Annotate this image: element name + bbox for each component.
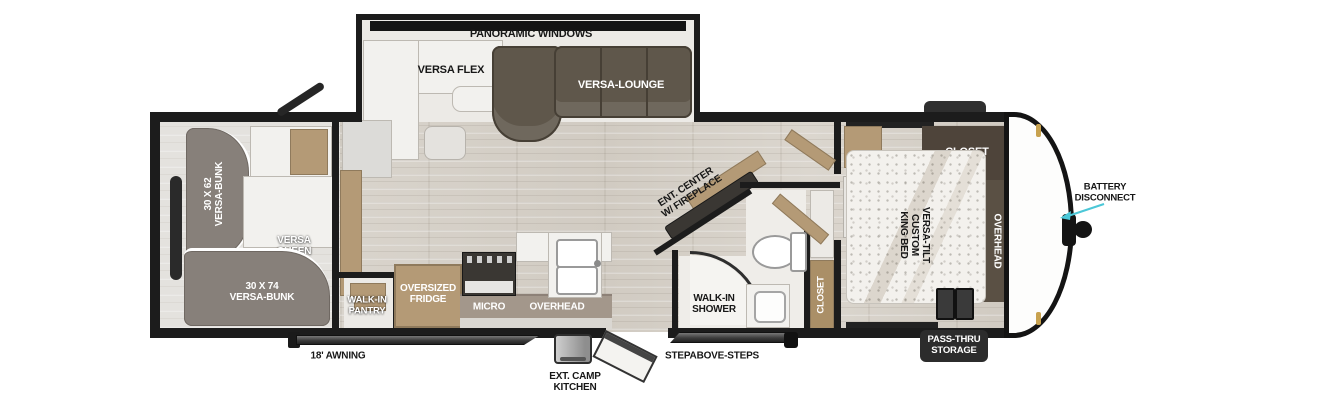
sink-faucet bbox=[594, 260, 601, 267]
stove-knobs bbox=[467, 256, 513, 263]
top-wall-left bbox=[150, 112, 362, 122]
stove-cooktop bbox=[462, 252, 516, 296]
bedroom-wall-lower bbox=[834, 240, 841, 332]
camp-kitchen-unit bbox=[554, 334, 592, 364]
bed-step bbox=[936, 288, 955, 320]
versa-flex-label: VERSA FLEX bbox=[418, 64, 485, 76]
vanity-sink bbox=[754, 291, 786, 323]
bunk-30x62-label: 30 X 62VERSA-BUNK bbox=[203, 162, 225, 227]
top-wall-right bbox=[694, 112, 1012, 122]
shower-label: WALK-INSHOWER bbox=[692, 293, 736, 315]
entry-steps-bar bbox=[670, 332, 786, 343]
bunk-30x74-label: 30 X 74VERSA-BUNK bbox=[230, 281, 295, 303]
versa-lounge-chaise bbox=[492, 46, 562, 142]
awning-label: 18' AWNING bbox=[310, 350, 365, 361]
king-bed-label: VERSA-TILTCUSTOMKING BED bbox=[897, 207, 931, 263]
versa-lounge-label: VERSA-LOUNGE bbox=[578, 79, 664, 91]
rv-floorplan: PANORAMIC WINDOWS VERSA FLEX VERSA-LOUNG… bbox=[0, 0, 1335, 410]
pass-thru-label: PASS-THRUSTORAGE bbox=[928, 335, 981, 356]
bedroom-wall-upper bbox=[834, 118, 841, 174]
panoramic-windows-label: PANORAMIC WINDOWS bbox=[470, 28, 592, 40]
toilet-tank bbox=[790, 232, 807, 272]
micro-label: MICRO bbox=[473, 301, 505, 312]
cap-hinge bbox=[1036, 312, 1041, 325]
bedroom-overhead-label: OVERHEAD bbox=[991, 213, 1002, 268]
bunkroom-divider-wall bbox=[332, 118, 339, 332]
awning-bar bbox=[296, 335, 540, 345]
battery-arrow bbox=[1056, 200, 1108, 222]
bed-step bbox=[955, 288, 974, 320]
left-wall bbox=[150, 112, 160, 338]
cap-hinge bbox=[1036, 124, 1041, 137]
steps-label: STEPABOVE-STEPS bbox=[665, 350, 759, 361]
bath-closet-label: CLOSET bbox=[817, 276, 828, 313]
bathroom-wall-left bbox=[672, 250, 678, 332]
pantry-label: WALK-INPANTRY bbox=[347, 295, 386, 316]
entry-steps-end bbox=[784, 332, 798, 348]
kitchen-overhead-label: OVERHEAD bbox=[529, 301, 584, 312]
hitch-knob bbox=[1074, 221, 1092, 238]
stove-front bbox=[465, 281, 513, 293]
entry-door-leaf bbox=[592, 330, 657, 383]
pass-thru-badge: PASS-THRUSTORAGE bbox=[920, 330, 988, 362]
versa-flex-chair bbox=[424, 126, 466, 160]
camp-kitchen-base bbox=[560, 357, 586, 361]
rear-window bbox=[170, 176, 182, 280]
camp-kitchen-label: EXT. CAMPKITCHEN bbox=[549, 371, 601, 393]
fridge-label: OVERSIZEDFRIDGE bbox=[400, 283, 456, 305]
entry-door-edge bbox=[604, 333, 655, 363]
sink-basin bbox=[556, 266, 598, 295]
bunk-top-blanket bbox=[290, 129, 328, 175]
bathroom-wall-top bbox=[740, 182, 840, 188]
sink-basin bbox=[556, 239, 598, 268]
